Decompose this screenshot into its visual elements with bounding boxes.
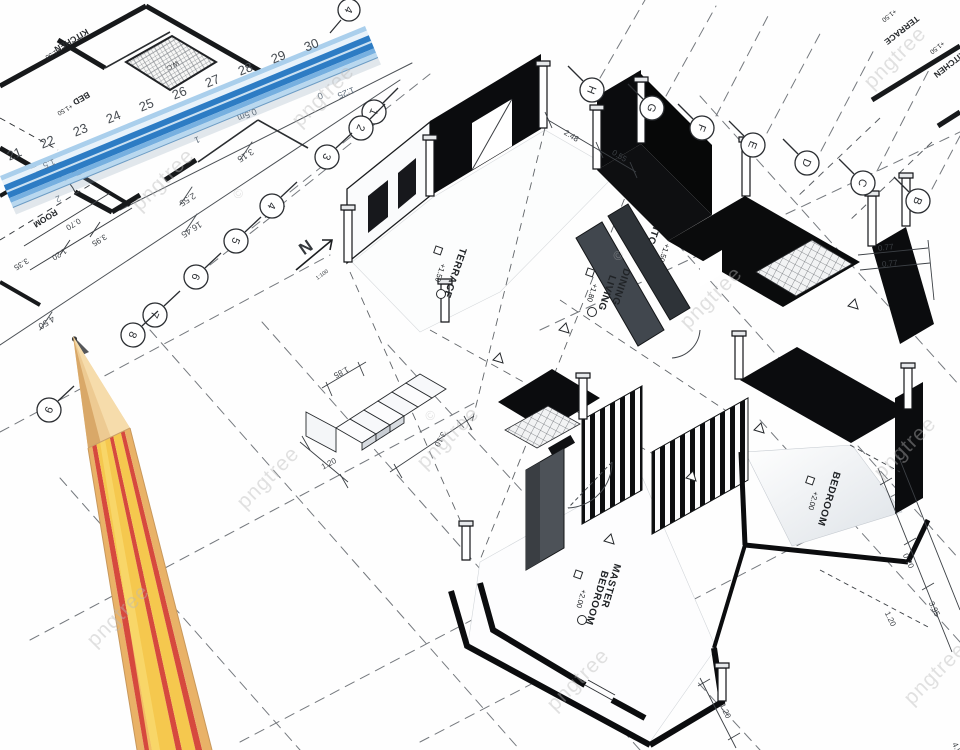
watermark-text: pngtree [899,638,960,710]
gray-panel-shade [526,462,540,570]
room-dim: 0.70 [64,216,82,232]
ruler-number: 25 [137,95,156,114]
watermark-copyright: © [422,406,440,424]
plan-scale: 1:100 [315,269,330,282]
dim-1-20-right: 1.20 [883,610,898,628]
north-arrow: N 1:100 [295,236,332,281]
watermark-copyright: © [230,184,248,202]
corner-terrace-level: +1.50 [880,7,898,23]
bedroom-back-wall [740,347,908,443]
bed-2d-label: BED [71,90,92,108]
bed-2d-level: +1.50 [56,102,74,116]
room-dim: 1.20 [50,246,68,262]
pencil [72,336,212,750]
dim-0-77-a: 0.77 [878,242,895,253]
dim-3-95: 3.95 [927,600,942,618]
dim-0-77-b: 0.77 [882,258,899,269]
sheet-dim: 3.15 [236,147,256,165]
plan-3d: KITCHEN +1.50 [295,54,960,750]
dim-1-85: 1.85 [332,365,350,381]
sheet-dim: 4.50 [37,314,57,332]
ruler-number: 24 [104,107,123,126]
dim-1-20-stairs: 1.20 [320,456,338,472]
blueprint-photo: 4.50 16.45 2.55 3.15 KITCHEN +1.50 W.C. … [0,0,960,750]
kitchen-2d-level: +1.50 [44,46,62,60]
watermark-text: pngtree [232,442,304,514]
corner-kitchen-level: +1.50 [928,39,946,55]
plan-2d-topright: TERRACE +1.50 KITCHEN +1.50 [796,7,960,222]
blueprint-scene: 4.50 16.45 2.55 3.15 KITCHEN +1.50 W.C. … [0,0,960,750]
dim-4-50-partial: 4.50 [950,741,960,750]
ruler-number: 23 [71,120,90,139]
room-dim: 3.35 [12,256,30,272]
room-dim: 3.95 [90,232,108,248]
ruler-number: 22 [38,132,57,151]
